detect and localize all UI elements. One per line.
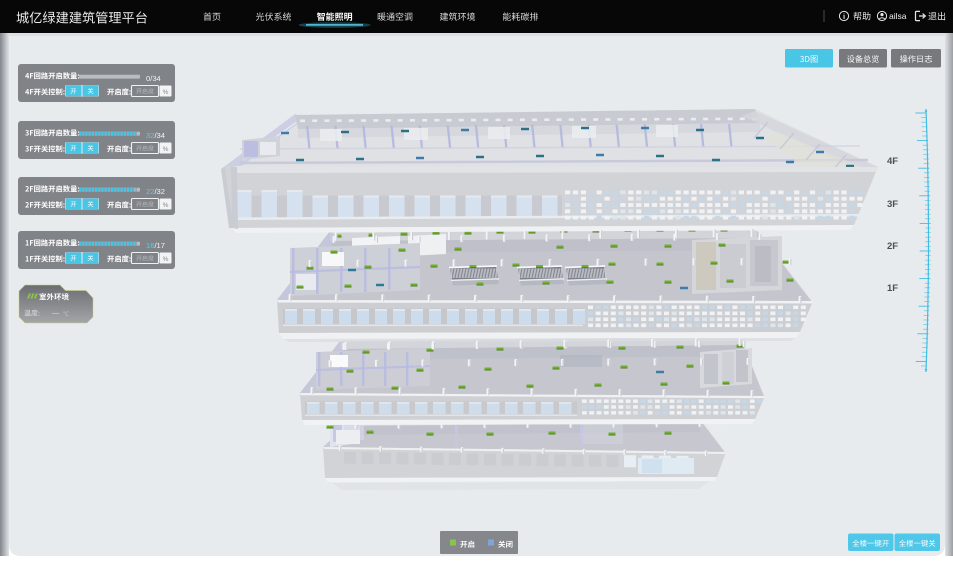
svg-text:ailsa: ailsa bbox=[889, 11, 907, 21]
svg-text:/34: /34 bbox=[154, 131, 165, 140]
svg-text:i: i bbox=[843, 12, 845, 21]
svg-text:0/34: 0/34 bbox=[146, 74, 161, 83]
svg-text:%: % bbox=[163, 89, 169, 96]
svg-text:4F: 4F bbox=[887, 156, 898, 167]
svg-text:%: % bbox=[163, 256, 169, 263]
svg-text:%: % bbox=[163, 146, 169, 153]
svg-text:2F: 2F bbox=[887, 241, 898, 252]
svg-text:1F: 1F bbox=[887, 283, 898, 294]
svg-text:%: % bbox=[163, 202, 169, 209]
svg-text:3F: 3F bbox=[887, 199, 898, 210]
svg-text:/17: /17 bbox=[154, 241, 165, 250]
svg-text:22: 22 bbox=[146, 187, 154, 196]
svg-text:16: 16 bbox=[146, 241, 154, 250]
svg-text:32: 32 bbox=[146, 131, 154, 140]
svg-text:—: — bbox=[52, 308, 60, 317]
svg-text:/32: /32 bbox=[154, 187, 165, 196]
